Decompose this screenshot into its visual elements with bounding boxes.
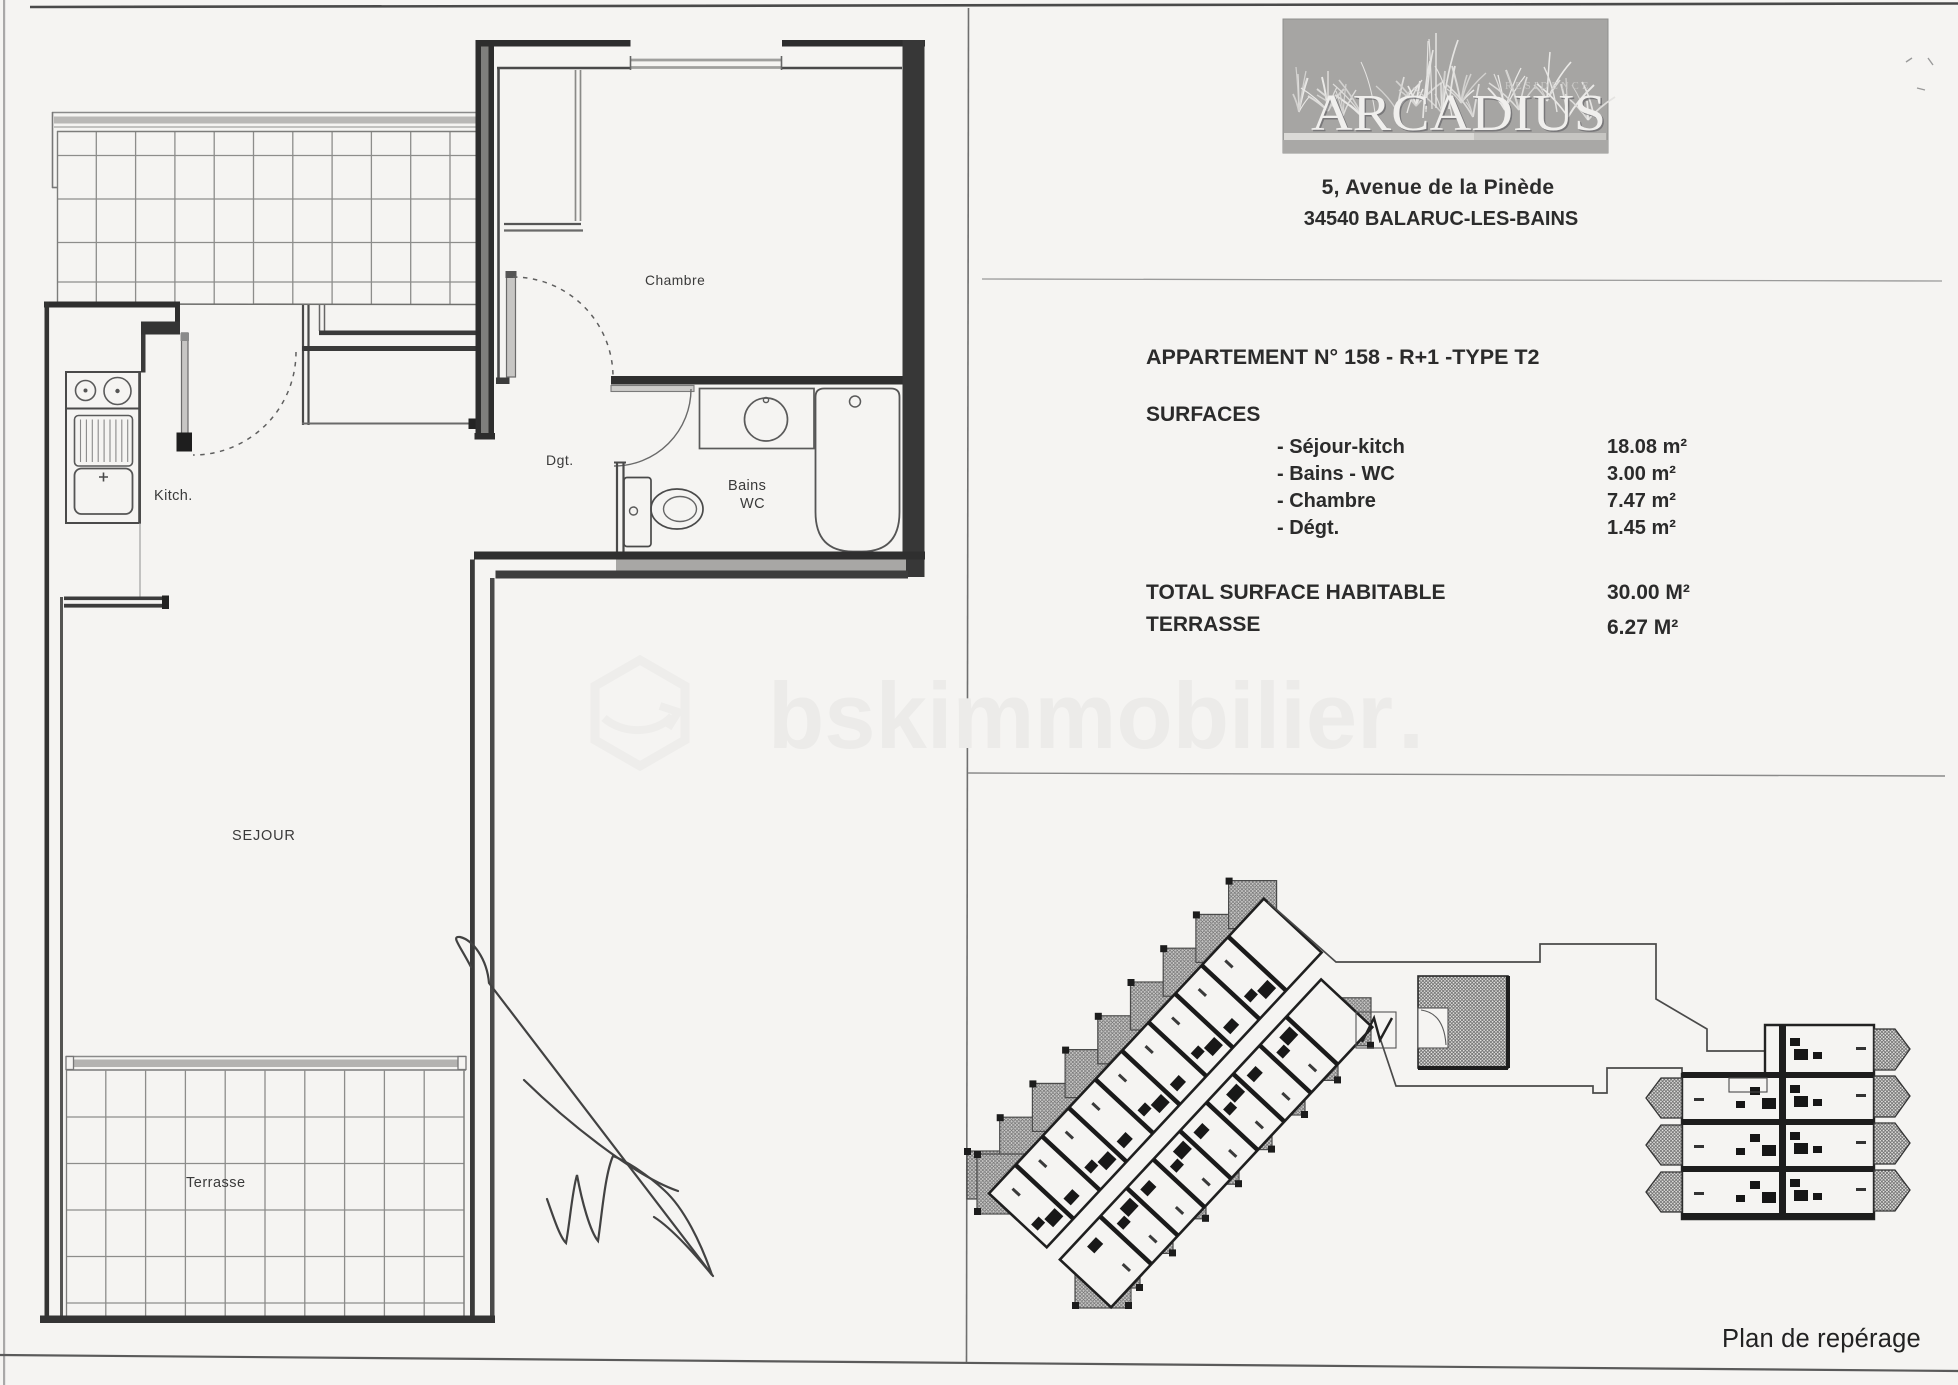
svg-text:Terrasse: Terrasse: [186, 1175, 246, 1191]
svg-text:Plan de repérage: Plan de repérage: [1722, 1325, 1921, 1353]
svg-text:Bains: Bains: [728, 478, 766, 494]
svg-text:Chambre: Chambre: [645, 273, 705, 288]
svg-text:6.27 M²: 6.27 M²: [1607, 616, 1678, 639]
svg-text:APPARTEMENT N° 158 - R+1 -TYPE: APPARTEMENT N° 158 - R+1 -TYPE T2: [1146, 345, 1540, 369]
svg-text:bskimmobilier: bskimmobilier: [768, 663, 1393, 768]
svg-text:34540 BALARUC-LES-BAINS: 34540 BALARUC-LES-BAINS: [1304, 208, 1579, 230]
svg-text:ARCADIUS: ARCADIUS: [1311, 85, 1606, 142]
svg-text:1.45 m²: 1.45 m²: [1607, 517, 1676, 539]
svg-text:TERRASSE: TERRASSE: [1146, 613, 1260, 636]
svg-text:Kitch.: Kitch.: [154, 488, 193, 504]
svg-text:Dgt.: Dgt.: [546, 452, 574, 468]
svg-text:.: .: [1398, 663, 1424, 768]
svg-text:SURFACES: SURFACES: [1146, 403, 1260, 426]
svg-text:WC: WC: [740, 496, 765, 512]
svg-text:- Séjour-kitch: - Séjour-kitch: [1277, 436, 1405, 458]
svg-text:30.00 M²: 30.00 M²: [1607, 581, 1690, 604]
svg-text:- Dégt.: - Dégt.: [1277, 517, 1339, 539]
svg-text:18.08 m²: 18.08 m²: [1607, 436, 1687, 458]
svg-text:- Chambre: - Chambre: [1277, 490, 1376, 512]
svg-text:5, Avenue de la Pinède: 5, Avenue de la Pinède: [1322, 176, 1555, 199]
svg-text:3.00 m²: 3.00 m²: [1607, 463, 1676, 485]
svg-text:- Bains - WC: - Bains - WC: [1277, 463, 1395, 485]
svg-text:SEJOUR: SEJOUR: [232, 828, 296, 844]
svg-text:7.47 m²: 7.47 m²: [1607, 490, 1676, 512]
svg-text:TOTAL SURFACE HABITABLE: TOTAL SURFACE HABITABLE: [1146, 581, 1445, 604]
